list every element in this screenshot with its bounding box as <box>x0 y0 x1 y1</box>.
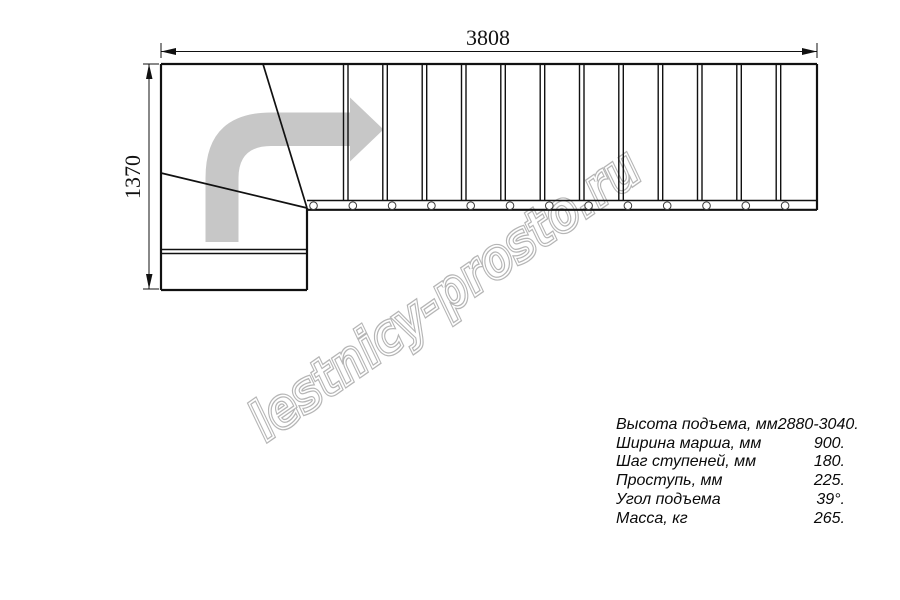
spec-value: 2880-3040. <box>778 416 859 435</box>
stair-plan-drawing: lestnicy-prosto.ru lestnicy-prosto.ru <box>0 0 900 600</box>
spec-value: 265. <box>814 510 845 529</box>
landing-step-edge <box>161 250 307 254</box>
spec-label: Масса, кг <box>616 510 688 529</box>
spec-row: Высота подъема, мм 2880-3040. <box>616 416 845 435</box>
spec-label: Угол подъема <box>616 491 721 510</box>
spec-row: Ширина марша, мм 900. <box>616 435 845 454</box>
dimension-left: 1370 <box>120 64 159 289</box>
spec-value: 180. <box>814 453 845 472</box>
dimension-top: 3808 <box>161 25 817 58</box>
spec-row: Масса, кг 265. <box>616 510 845 529</box>
spec-value: 900. <box>814 435 845 454</box>
dimension-top-label: 3808 <box>466 25 510 50</box>
spec-row: Шаг ступеней, мм 180. <box>616 453 845 472</box>
bolt-circles <box>310 202 789 210</box>
stair-outline <box>161 64 817 290</box>
spec-label: Проступь, мм <box>616 472 722 491</box>
dim-arrow-right <box>802 48 817 55</box>
spec-row: Угол подъема 39°. <box>616 491 845 510</box>
spec-row: Проступь, мм 225. <box>616 472 845 491</box>
spec-label: Шаг ступеней, мм <box>616 453 756 472</box>
spec-value: 225. <box>814 472 845 491</box>
dim-arrow-up <box>146 64 153 79</box>
dimension-left-label: 1370 <box>120 155 145 199</box>
spec-value: 39°. <box>816 491 845 510</box>
dim-arrow-left <box>161 48 176 55</box>
tread-lines <box>344 64 781 201</box>
specs-table: Высота подъема, мм 2880-3040. Ширина мар… <box>616 416 845 528</box>
spec-label: Ширина марша, мм <box>616 435 761 454</box>
dim-arrow-down <box>146 274 153 289</box>
spec-label: Высота подъема, мм <box>616 416 778 435</box>
